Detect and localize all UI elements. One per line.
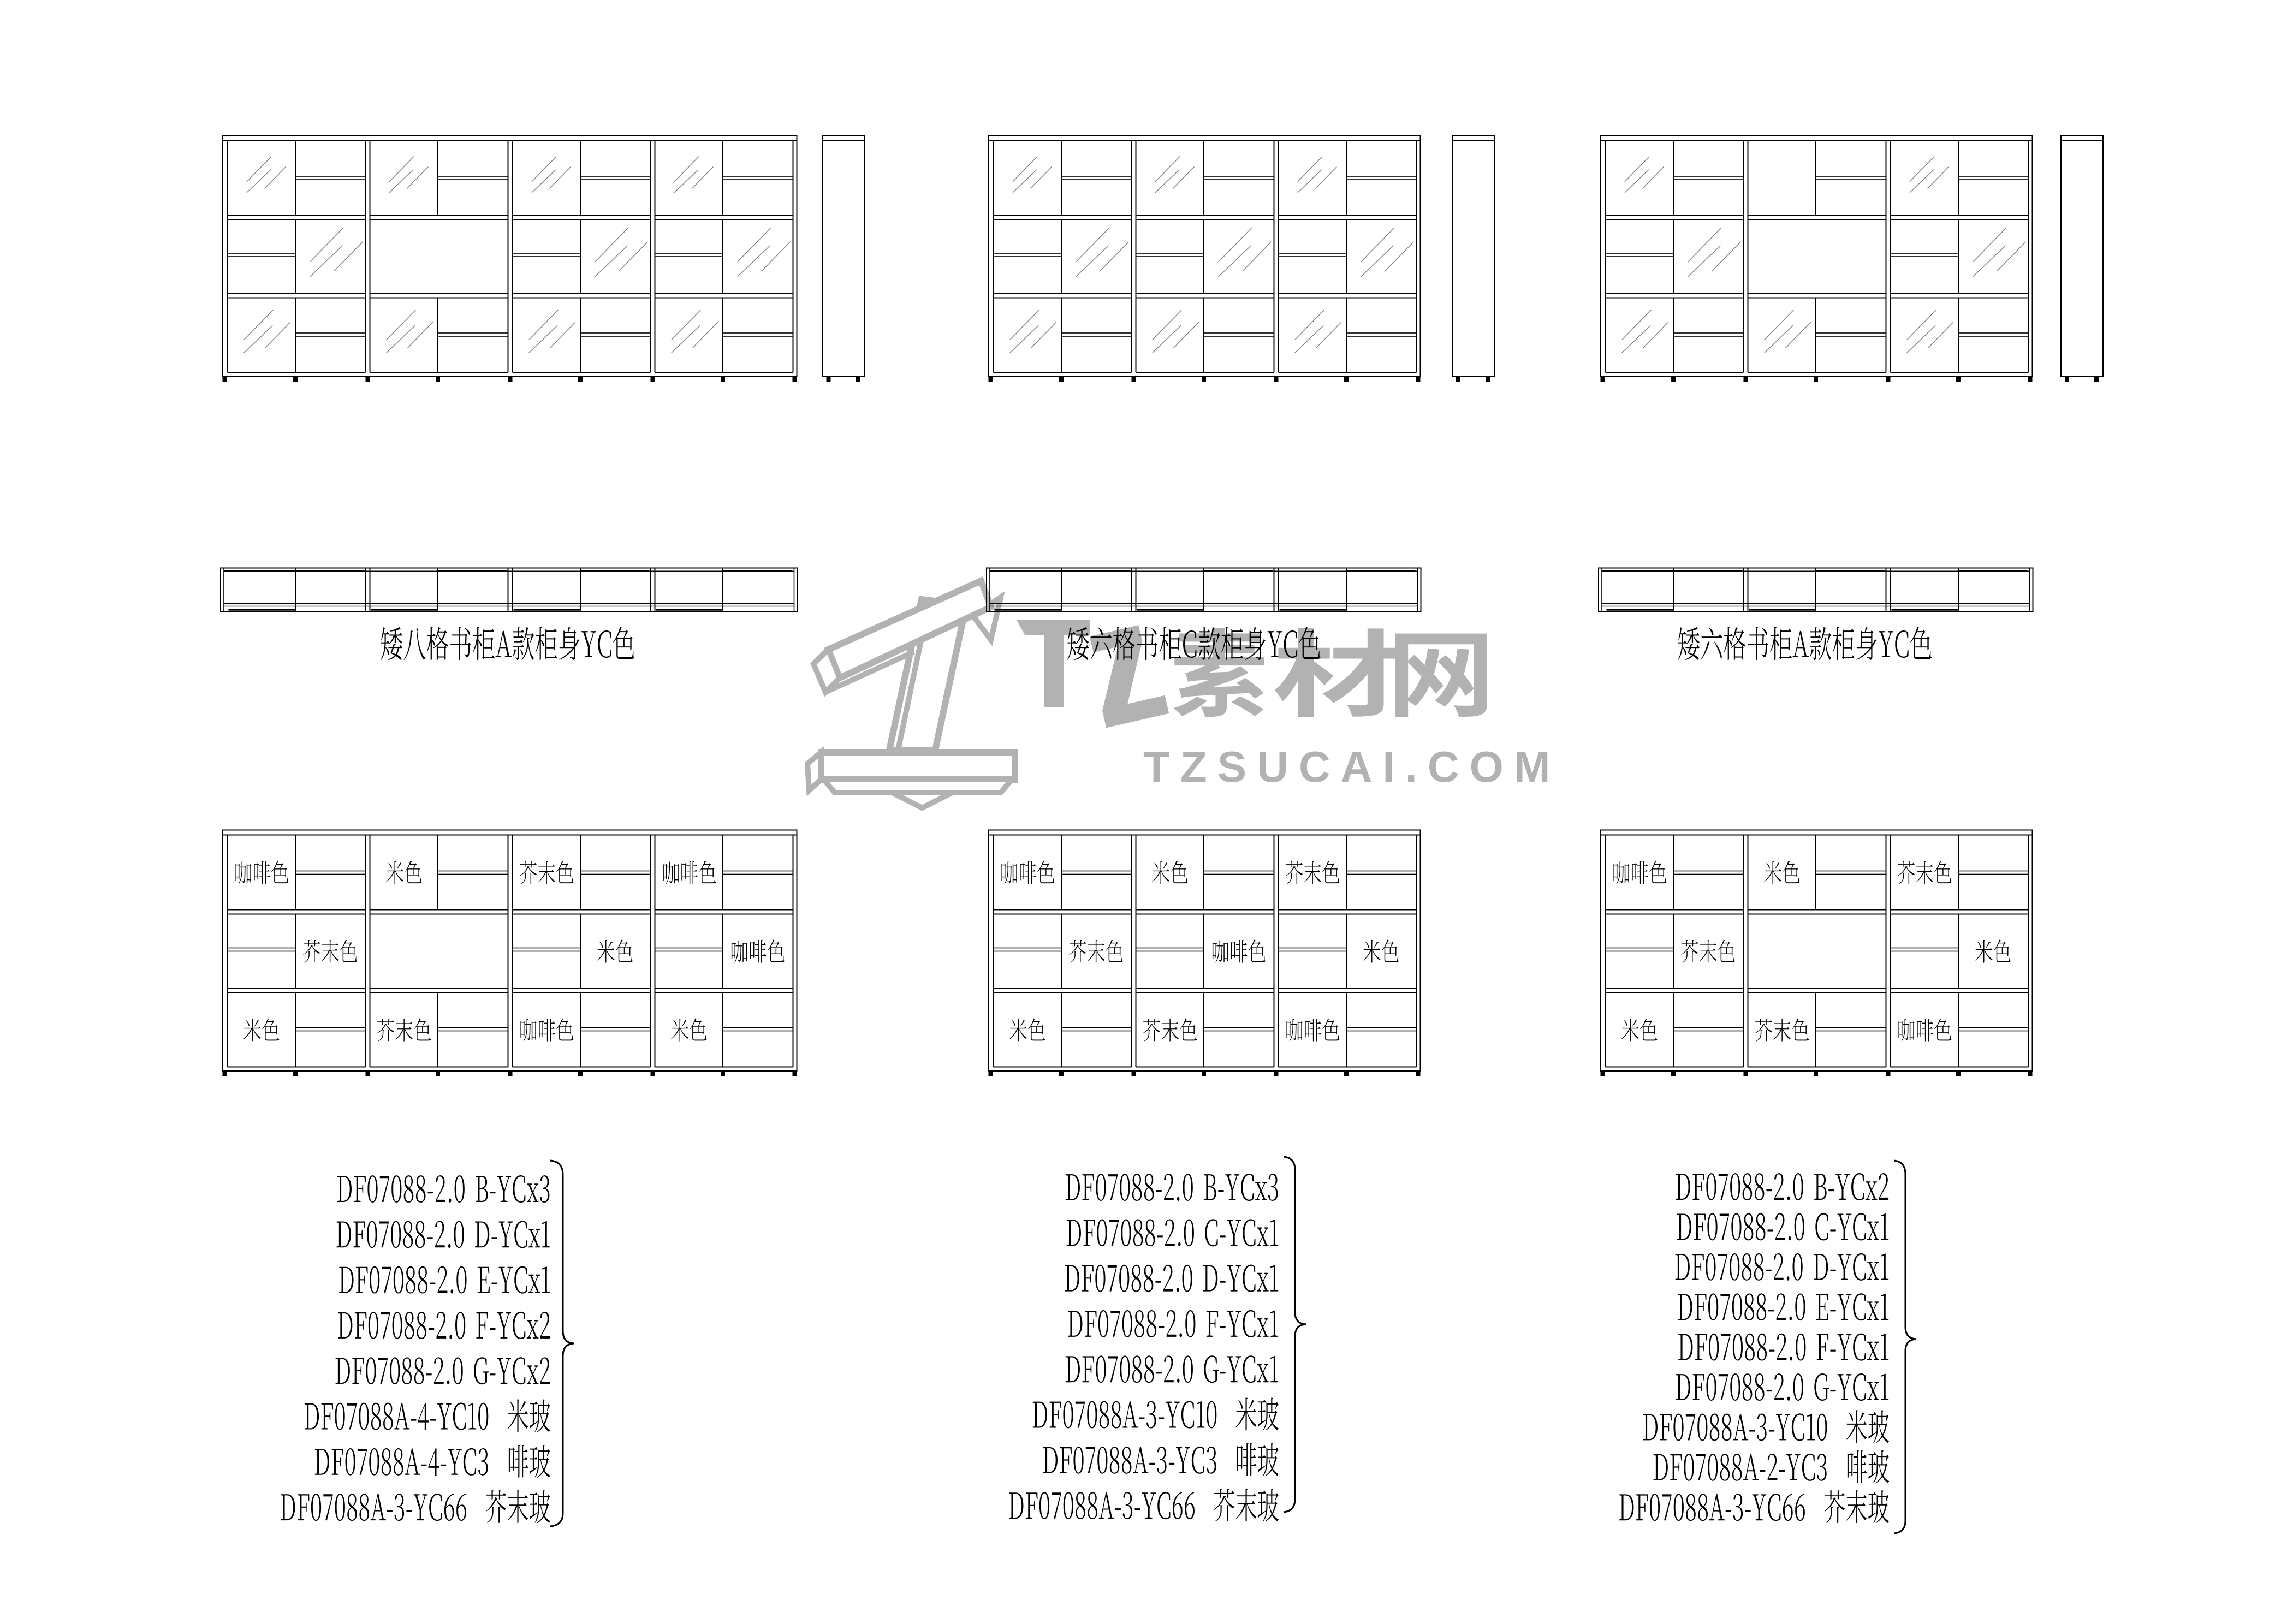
svg-text:TZSUCAI.COM: TZSUCAI.COM [1143, 742, 1561, 791]
